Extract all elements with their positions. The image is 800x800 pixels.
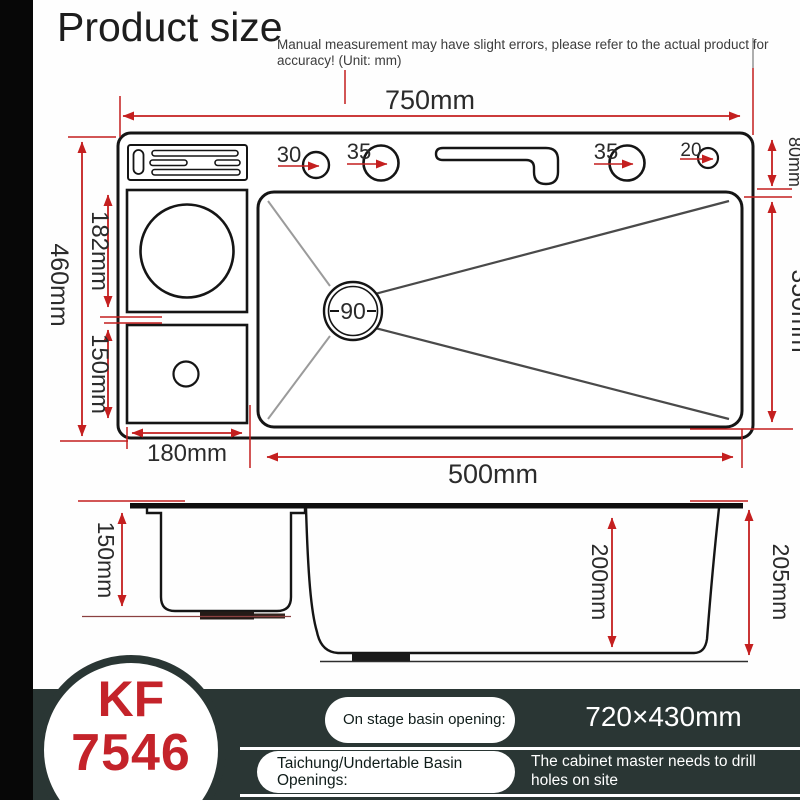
hole-30-label: 30 [277,142,301,167]
hole-35b-label: 35 [594,139,618,164]
main-basin-drain [352,654,410,662]
spec-value-topmount: 720×430mm [556,701,771,733]
top-view: 30 35 35 20 [45,38,800,489]
main-basin-profile [306,508,719,653]
dim-basin-depth: 350mm [786,269,800,352]
side-view: 150mm 200mm 205mm [78,501,794,662]
model-number: 7546 [71,726,191,781]
sink-outline [118,133,753,438]
spec-label-undermount: Taichung/Undertable Basin Openings: [257,751,515,793]
dim-overall-width: 750mm [385,85,475,115]
left-accent-bar [0,0,33,800]
dim-side-main-depth: 200mm [587,544,613,621]
drain-label: 90 [340,298,366,324]
hole-20-label: 20 [680,140,701,161]
small-basin-drain [200,612,254,620]
dim-small-basin-depth: 150mm [86,334,113,414]
hole-35a-label: 35 [347,139,371,164]
spec-value-undermount: The cabinet master needs to drill holes … [531,753,795,790]
dim-basin-width: 500mm [448,459,538,489]
countertop [130,503,743,509]
spec-label-topmount-text: On stage basin opening: [343,712,506,729]
dim-side-small-depth: 150mm [93,522,119,599]
footer-separator-1 [240,747,800,750]
side-view-dimensions: 150mm 200mm 205mm [93,510,794,655]
footer-separator-2 [240,794,800,797]
model-prefix: KF [98,673,165,726]
drain: 90 [324,282,382,340]
dim-overall-depth: 460mm [45,243,73,326]
spec-label-topmount: On stage basin opening: [325,697,515,743]
dim-left-width: 180mm [147,440,227,467]
spec-label-undermount-text: Taichung/Undertable Basin Openings: [277,755,515,790]
page-title: Product size [57,4,283,51]
dim-deck-height: 80mm [785,137,800,187]
disclaimer-text: Manual measurement may have slight error… [277,37,797,70]
dim-tray-depth: 182mm [86,211,113,291]
product-size-infographic: Product size Manual measurement may have… [0,0,800,800]
dim-side-overall-height: 205mm [768,544,794,621]
small-basin-profile [147,508,305,611]
